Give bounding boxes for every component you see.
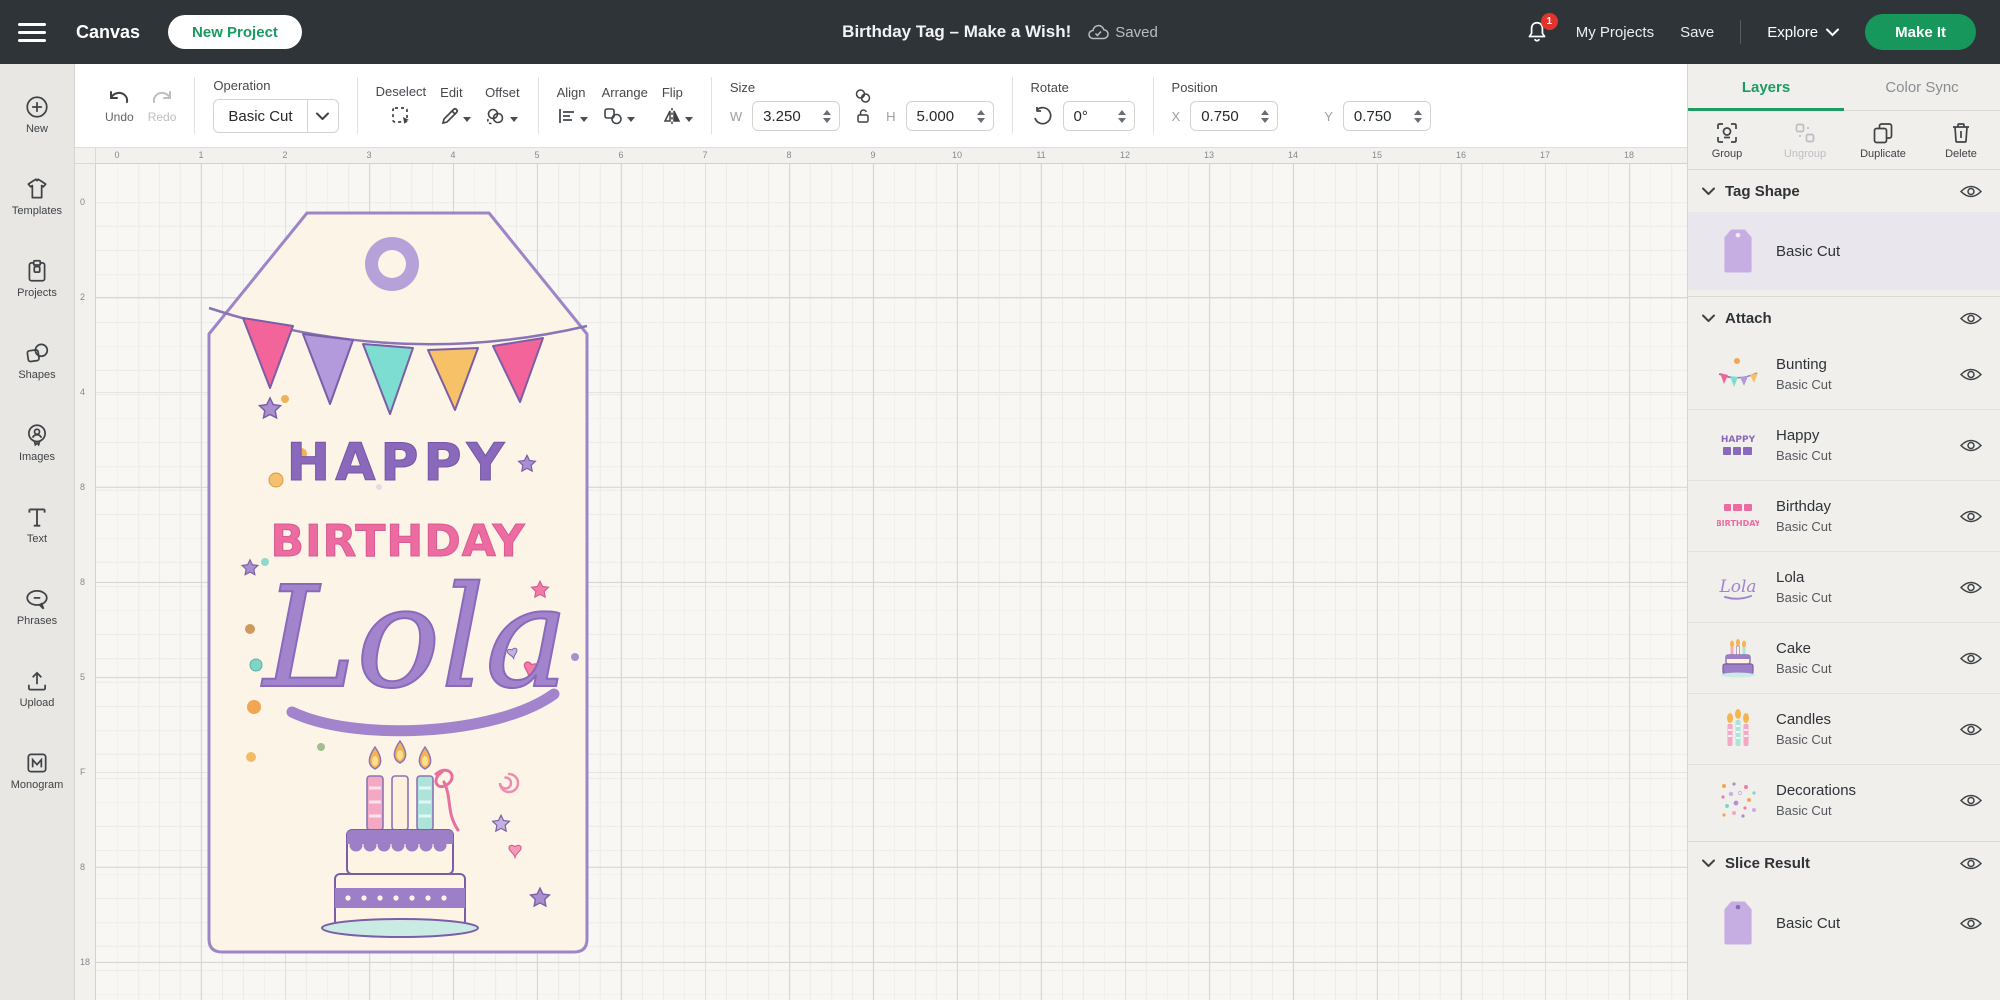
notification-badge: 1	[1541, 13, 1558, 30]
layer-thumb-decorations	[1716, 780, 1760, 820]
sidebar-item-upload[interactable]: Upload	[2, 652, 72, 725]
my-projects-link[interactable]: My Projects	[1576, 24, 1654, 41]
sidebar-item-label: Monogram	[11, 780, 64, 791]
shapes-icon	[24, 340, 50, 366]
layer-thumb-candles	[1716, 708, 1760, 750]
layer-group-slice-result[interactable]: Slice Result	[1688, 842, 2000, 884]
text-icon	[24, 504, 50, 530]
sidebar-item-label: Shapes	[18, 370, 55, 381]
tag-design[interactable]: HAPPY BIRTHDAY Lola	[204, 208, 592, 970]
explore-menu[interactable]: Explore	[1767, 24, 1839, 41]
x-label: X	[1172, 109, 1181, 124]
y-label: Y	[1324, 109, 1333, 124]
plus-circle-icon	[24, 94, 50, 120]
layer-operation: Basic Cut	[1776, 519, 1944, 534]
sidebar-item-shapes[interactable]: Shapes	[2, 324, 72, 397]
chevron-down-icon[interactable]	[1702, 314, 1715, 323]
ruler-top: 0123456789101112131415161718	[96, 148, 1687, 164]
arrange-menu-button[interactable]: Arrange	[602, 85, 648, 126]
delete-button[interactable]: Delete	[1922, 121, 2000, 160]
chevron-down-icon[interactable]	[1702, 859, 1715, 868]
new-project-button[interactable]: New Project	[168, 15, 302, 49]
align-menu-button[interactable]: Align	[557, 85, 588, 126]
happy-text: HAPPY	[287, 433, 510, 493]
layer-thumb-tag	[1716, 226, 1760, 276]
layer-thumb-lola: Lola	[1716, 570, 1760, 604]
height-input[interactable]: 5.000	[906, 101, 994, 131]
layer-group-tag-shape[interactable]: Tag Shape	[1688, 170, 2000, 212]
duplicate-button[interactable]: Duplicate	[1844, 121, 1922, 160]
clipboard-icon	[24, 258, 50, 284]
flip-label: Flip	[662, 85, 693, 100]
width-label: W	[730, 109, 742, 124]
align-label: Align	[557, 85, 588, 100]
visibility-eye-icon[interactable]	[1960, 509, 1982, 524]
caret-down-icon	[627, 117, 635, 122]
group-name: Slice Result	[1725, 855, 1950, 872]
group-name: Attach	[1725, 310, 1950, 327]
caret-down-icon	[580, 117, 588, 122]
layer-row-lola[interactable]: Lola Lola Basic Cut	[1688, 551, 2000, 622]
edit-menu-button[interactable]: Edit	[440, 85, 471, 126]
arrange-icon	[602, 106, 624, 126]
sidebar-item-images[interactable]: Images	[2, 406, 72, 479]
notifications-bell-icon[interactable]: 1	[1524, 19, 1550, 45]
sidebar-item-templates[interactable]: Templates	[2, 160, 72, 233]
sidebar-item-label: New	[26, 124, 48, 135]
layer-name: Bunting	[1776, 356, 1944, 373]
svg-text:Lola: Lola	[1718, 577, 1756, 597]
operation-label: Operation	[213, 78, 338, 93]
link-icon	[854, 88, 872, 104]
layer-name: Candles	[1776, 711, 1944, 728]
canvas-grid[interactable]: HAPPY BIRTHDAY Lola	[96, 164, 1687, 1000]
ruler-corner	[75, 148, 96, 164]
layer-operation: Basic Cut	[1776, 661, 1944, 676]
group-label: Group	[1712, 148, 1743, 160]
sidebar-item-label: Projects	[17, 288, 57, 299]
sidebar-item-text[interactable]: Text	[2, 488, 72, 561]
ungroup-label: Ungroup	[1784, 148, 1826, 160]
layer-thumb-tag	[1716, 898, 1760, 948]
make-it-button[interactable]: Make It	[1865, 14, 1976, 50]
sidebar-item-monogram[interactable]: Monogram	[2, 734, 72, 807]
sidebar-item-new[interactable]: New	[2, 78, 72, 151]
sidebar-item-label: Phrases	[17, 616, 57, 627]
group-button[interactable]: Group	[1688, 121, 1766, 160]
layer-operation: Basic Cut	[1776, 590, 1944, 605]
unlock-icon	[855, 108, 871, 123]
visibility-eye-icon[interactable]	[1960, 438, 1982, 453]
layer-name: Decorations	[1776, 782, 1944, 799]
ruler-left: 024885F818	[75, 164, 96, 1000]
sidebar-item-label: Images	[19, 452, 55, 463]
canvas-label: Canvas	[76, 22, 140, 43]
operation-value: Basic Cut	[214, 108, 306, 125]
undo-label: Undo	[105, 110, 134, 124]
layer-thumb-bunting	[1716, 356, 1760, 392]
layer-operation: Basic Cut	[1776, 377, 1944, 392]
layer-row-decorations[interactable]: Decorations Basic Cut	[1688, 764, 2000, 835]
stepper-icon[interactable]	[1414, 110, 1430, 123]
rotate-input[interactable]: 0°	[1063, 101, 1135, 131]
edit-toolbar: Undo Redo Operation Basic Cut	[75, 64, 1687, 148]
delete-label: Delete	[1945, 148, 1977, 160]
layer-row-candles[interactable]: Candles Basic Cut	[1688, 693, 2000, 764]
visibility-eye-icon[interactable]	[1960, 793, 1982, 808]
layer-row-happy[interactable]: HAPPY Happy Basic Cut	[1688, 409, 2000, 480]
saved-status: Saved	[1115, 24, 1158, 41]
hamburger-menu-icon[interactable]	[0, 0, 64, 64]
layer-operation: Basic Cut	[1776, 732, 1944, 747]
canvas-area: 0123456789101112131415161718 024885F818	[75, 148, 1687, 1000]
arrange-label: Arrange	[602, 85, 648, 100]
height-label: H	[886, 109, 895, 124]
layer-row-slice-result-cut[interactable]: Basic Cut	[1688, 884, 2000, 962]
layer-thumb-cake	[1716, 638, 1760, 678]
stepper-icon[interactable]	[977, 110, 993, 123]
sidebar-item-projects[interactable]: Projects	[2, 242, 72, 315]
pencil-icon	[440, 106, 460, 126]
speech-bubble-icon	[24, 586, 50, 612]
layer-name: Lola	[1776, 569, 1944, 586]
layer-name: Happy	[1776, 427, 1944, 444]
size-label: Size	[730, 80, 840, 95]
sidebar-item-label: Upload	[20, 698, 55, 709]
layer-name: Birthday	[1776, 498, 1944, 515]
flip-menu-button[interactable]: Flip	[662, 85, 693, 126]
caret-down-icon	[510, 117, 518, 122]
visibility-eye-icon[interactable]	[1960, 184, 1982, 199]
redo-label: Redo	[148, 110, 177, 124]
svg-text:BIRTHDAY: BIRTHDAY	[1717, 519, 1759, 528]
save-link[interactable]: Save	[1680, 24, 1714, 41]
caret-down-icon	[463, 117, 471, 122]
visibility-eye-icon[interactable]	[1960, 916, 1982, 931]
group-name: Tag Shape	[1725, 183, 1950, 200]
visibility-eye-icon[interactable]	[1960, 722, 1982, 737]
left-sidebar: New Templates Projects Shapes	[0, 64, 75, 1000]
rotate-label: Rotate	[1031, 80, 1135, 95]
offset-label: Offset	[485, 85, 519, 100]
visibility-eye-icon[interactable]	[1960, 856, 1982, 871]
topbar-divider	[1740, 20, 1741, 44]
deselect-button[interactable]: Deselect	[376, 84, 427, 127]
edit-label: Edit	[440, 85, 471, 100]
x-position-input[interactable]: 0.750	[1190, 101, 1278, 131]
layer-thumb-birthday: BIRTHDAY	[1716, 499, 1760, 533]
layers-panel: Layers Color Sync Group Ungroup	[1687, 64, 2000, 1000]
cloud-saved-icon	[1087, 23, 1109, 41]
offset-icon	[485, 106, 507, 126]
stepper-icon[interactable]	[1261, 110, 1277, 123]
undo-button[interactable]: Undo	[105, 88, 134, 124]
project-title: Birthday Tag – Make a Wish!	[842, 22, 1071, 42]
chevron-down-icon[interactable]	[1702, 187, 1715, 196]
position-label: Position	[1172, 80, 1431, 95]
layer-row-birthday[interactable]: BIRTHDAY Birthday Basic Cut	[1688, 480, 2000, 551]
duplicate-label: Duplicate	[1860, 148, 1906, 160]
sidebar-item-label: Text	[27, 534, 47, 545]
top-bar: Canvas New Project Birthday Tag – Make a…	[0, 0, 2000, 64]
layer-name: Cake	[1776, 640, 1944, 657]
visibility-eye-icon[interactable]	[1960, 651, 1982, 666]
shirt-icon	[24, 176, 50, 202]
layer-operation: Basic Cut	[1776, 243, 1982, 260]
operation-dropdown[interactable]: Basic Cut	[213, 99, 338, 133]
ungroup-button[interactable]: Ungroup	[1766, 121, 1844, 160]
stepper-icon[interactable]	[1118, 110, 1134, 123]
sidebar-item-label: Templates	[12, 206, 62, 217]
layer-operation: Basic Cut	[1776, 448, 1944, 463]
visibility-eye-icon[interactable]	[1960, 580, 1982, 595]
redo-button[interactable]: Redo	[148, 88, 177, 124]
y-position-input[interactable]: 0.750	[1343, 101, 1431, 131]
layer-operation: Basic Cut	[1776, 803, 1944, 818]
layer-thumb-happy: HAPPY	[1716, 428, 1760, 462]
align-icon	[557, 106, 577, 126]
caret-down-icon	[685, 117, 693, 122]
layer-group-attach[interactable]: Attach	[1688, 297, 2000, 339]
sidebar-item-phrases[interactable]: Phrases	[2, 570, 72, 643]
visibility-eye-icon[interactable]	[1960, 367, 1982, 382]
app-window: Canvas New Project Birthday Tag – Make a…	[0, 0, 2000, 1000]
layer-list: Tag Shape Basic Cut	[1688, 170, 2000, 1000]
layer-operation: Basic Cut	[1776, 915, 1944, 932]
svg-text:HAPPY: HAPPY	[1721, 435, 1756, 445]
layer-row-bunting[interactable]: Bunting Basic Cut	[1688, 339, 2000, 409]
offset-menu-button[interactable]: Offset	[485, 85, 519, 126]
tab-color-sync[interactable]: Color Sync	[1844, 64, 2000, 110]
deselect-label: Deselect	[376, 84, 427, 99]
rotate-icon[interactable]	[1031, 105, 1053, 127]
chevron-down-icon	[307, 100, 338, 132]
chevron-down-icon	[1826, 28, 1839, 37]
visibility-eye-icon[interactable]	[1960, 311, 1982, 326]
flip-icon	[662, 106, 682, 126]
deselect-icon	[390, 105, 412, 127]
upload-icon	[24, 668, 50, 694]
explore-label: Explore	[1767, 24, 1818, 41]
stepper-icon[interactable]	[823, 110, 839, 123]
width-input[interactable]: 3.250	[752, 101, 840, 131]
tab-layers[interactable]: Layers	[1688, 64, 1844, 110]
monogram-icon	[24, 750, 50, 776]
layer-row-cake[interactable]: Cake Basic Cut	[1688, 622, 2000, 693]
layer-row-tag-shape-cut[interactable]: Basic Cut	[1688, 212, 2000, 290]
images-icon	[24, 422, 50, 448]
aspect-lock-toggle[interactable]	[854, 88, 872, 123]
name-script-text: Lola	[260, 557, 569, 720]
